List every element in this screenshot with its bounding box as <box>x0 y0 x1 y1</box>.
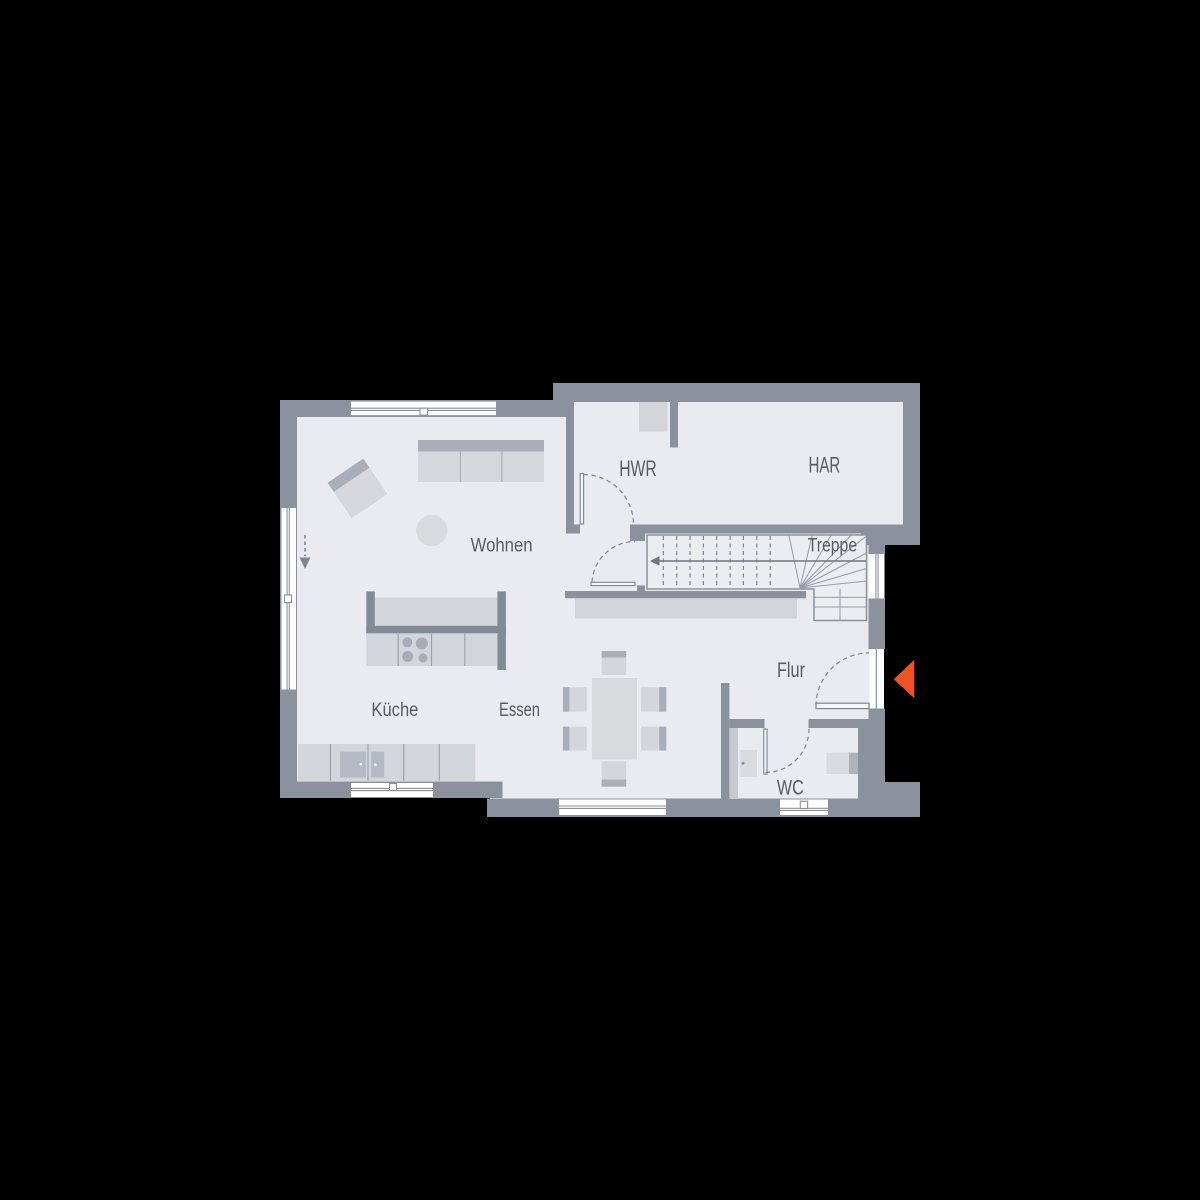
svg-text:HWR: HWR <box>619 456 657 481</box>
svg-text:WC: WC <box>777 777 804 800</box>
svg-text:Flur: Flur <box>777 659 805 682</box>
svg-text:Wohnen: Wohnen <box>471 536 533 557</box>
svg-text:HAR: HAR <box>809 452 841 477</box>
svg-text:Küche: Küche <box>371 700 418 721</box>
svg-text:Treppe: Treppe <box>808 536 857 557</box>
svg-text:Essen: Essen <box>499 700 540 721</box>
